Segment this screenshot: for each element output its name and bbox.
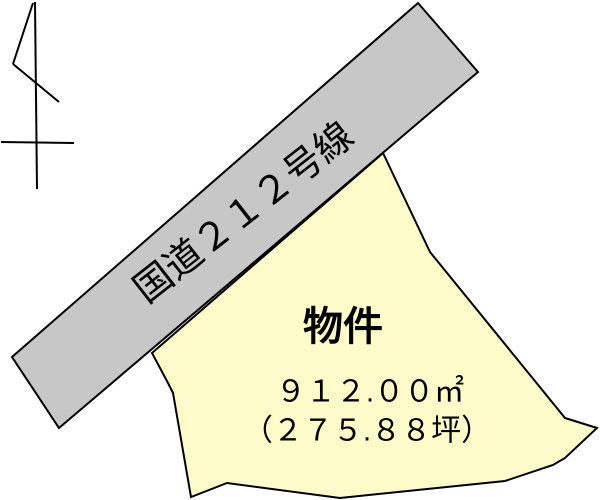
map-canvas: 国道２１２号線 物件 ９１２.００㎡ （２７５.８８坪） xyxy=(0,0,600,500)
parcel-title-label: 物件 xyxy=(303,305,383,349)
parcel-area-tsubo-label: （２７５.８８坪） xyxy=(243,415,491,448)
north-arrow-icon xyxy=(1,2,74,189)
property-location-map: 国道２１２号線 物件 ９１２.００㎡ （２７５.８８坪） xyxy=(0,0,600,500)
parcel-area-m2-label: ９１２.００㎡ xyxy=(276,376,464,409)
